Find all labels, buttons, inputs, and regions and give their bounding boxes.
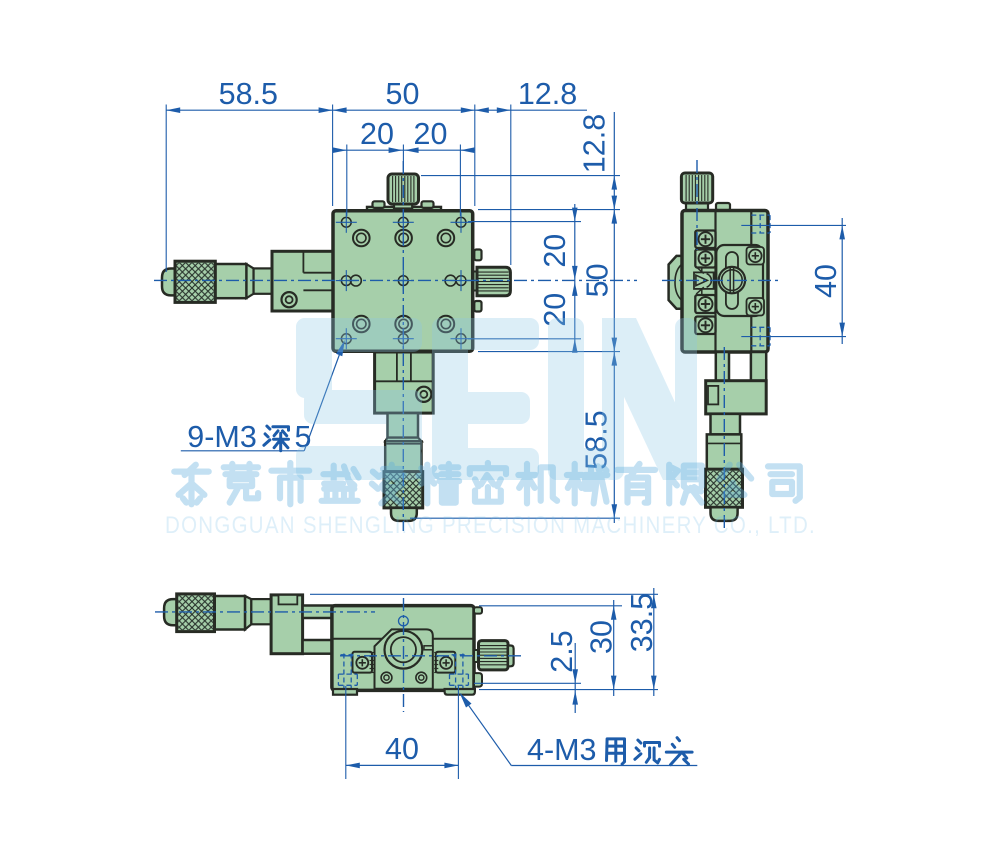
svg-text:DONGGUAN SHENGLING PRECISION M: DONGGUAN SHENGLING PRECISION MACHINERY C… [165,512,816,539]
svg-text:33.5: 33.5 [625,593,659,652]
svg-text:40: 40 [385,732,419,766]
svg-text:9-M3: 9-M3 [187,420,256,454]
svg-text:20: 20 [538,234,572,268]
svg-text:4-M3: 4-M3 [527,733,597,767]
svg-text:12.8: 12.8 [578,114,612,173]
svg-text:20: 20 [414,117,448,151]
svg-text:20: 20 [360,117,394,151]
svg-text:50: 50 [386,77,420,111]
svg-text:40: 40 [809,264,843,298]
svg-text:12.8: 12.8 [518,77,577,111]
svg-text:30: 30 [585,620,619,654]
svg-text:58.5: 58.5 [219,77,278,111]
svg-text:50: 50 [581,263,615,297]
svg-text:2.5: 2.5 [545,630,579,672]
